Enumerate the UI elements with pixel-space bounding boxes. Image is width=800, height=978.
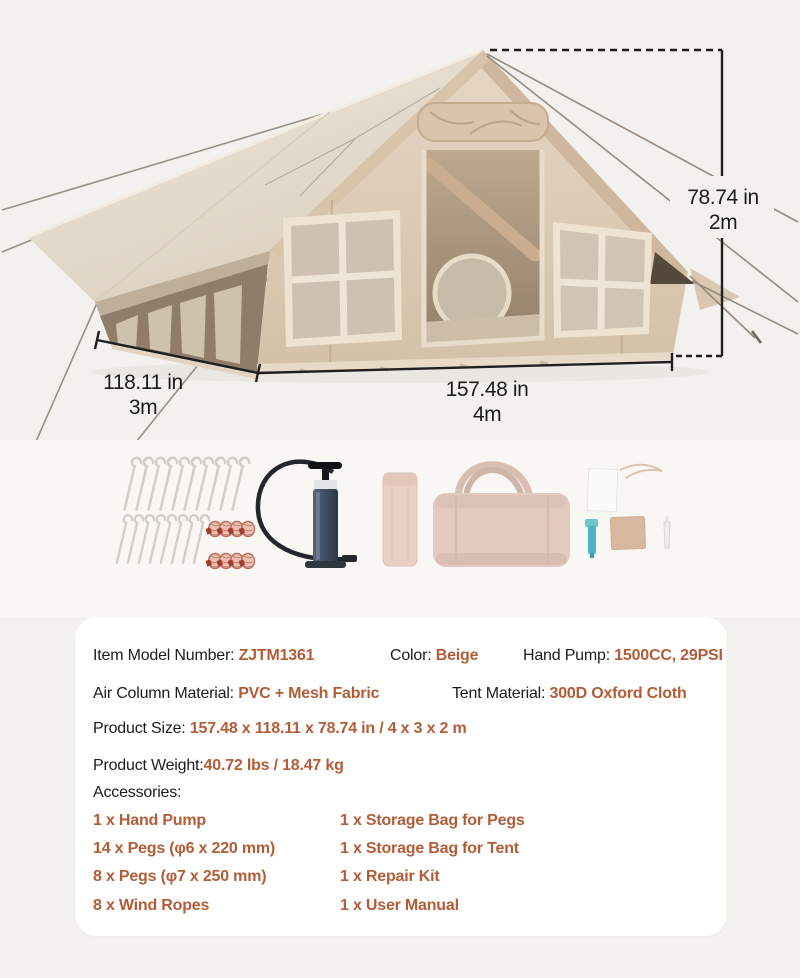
hand-pump-field: Hand Pump: 1500CC, 29PSI bbox=[523, 645, 723, 667]
accessory-pegs-8: 8 x Pegs (φ7 x 250 mm) bbox=[93, 866, 266, 888]
pump-handle bbox=[308, 462, 342, 469]
depth-in-label: 118.11 in bbox=[103, 371, 183, 394]
tent-door bbox=[418, 103, 548, 345]
item-model-label: Item Model Number: bbox=[93, 647, 239, 664]
accessory-hand-pump: 1 x Hand Pump bbox=[93, 810, 206, 832]
width-m-label: 4m bbox=[473, 403, 501, 426]
accessory-row-2: 14 x Pegs (φ6 x 220 mm) 1 x Storage Bag … bbox=[93, 838, 715, 860]
spec-row-size: Product Size: 157.48 x 118.11 x 78.74 in… bbox=[93, 718, 715, 740]
tent-photo: 78.74 in 2m 118.11 in 3m 157.48 in 4m bbox=[0, 0, 800, 440]
color-field: Color: Beige bbox=[390, 645, 478, 667]
air-column-field: Air Column Material: PVC + Mesh Fabric bbox=[93, 683, 379, 705]
product-weight-value: 40.72 lbs / 18.47 kg bbox=[204, 757, 344, 774]
product-size-label: Product Size: bbox=[93, 720, 190, 737]
product-size-value: 157.48 x 118.11 x 78.74 in / 4 x 3 x 2 m bbox=[190, 720, 467, 737]
accessory-row-4: 8 x Wind Ropes 1 x User Manual bbox=[93, 895, 715, 917]
product-page: 78.74 in 2m 118.11 in 3m 157.48 in 4m bbox=[0, 0, 800, 978]
color-value: Beige bbox=[436, 647, 479, 664]
spec-row-materials: Air Column Material: PVC + Mesh Fabric T… bbox=[93, 683, 715, 705]
peg-storage-bag bbox=[383, 473, 417, 566]
spec-row-weight: Product Weight:40.72 lbs / 18.47 kg bbox=[93, 755, 715, 777]
accessory-wind-ropes: 8 x Wind Ropes bbox=[93, 895, 209, 917]
front-window-right bbox=[553, 222, 652, 338]
accessories-photo bbox=[0, 440, 800, 617]
spec-row-model-color-pump: Item Model Number: ZJTM1361 Color: Beige… bbox=[93, 645, 715, 667]
accessory-row-1: 1 x Hand Pump 1 x Storage Bag for Pegs bbox=[93, 810, 715, 832]
item-model-field: Item Model Number: ZJTM1361 bbox=[93, 645, 314, 667]
product-weight-label: Product Weight: bbox=[93, 757, 204, 774]
spec-panel: Item Model Number: ZJTM1361 Color: Beige… bbox=[75, 617, 727, 936]
accessories-heading: Accessories: bbox=[93, 784, 181, 801]
accessory-row-3: 8 x Pegs (φ7 x 250 mm) 1 x Repair Kit bbox=[93, 866, 715, 888]
depth-m-label: 3m bbox=[129, 396, 157, 419]
air-column-label: Air Column Material: bbox=[93, 685, 238, 702]
width-in-label: 157.48 in bbox=[446, 378, 529, 401]
item-model-value: ZJTM1361 bbox=[239, 647, 315, 664]
accessory-pegs-14: 14 x Pegs (φ6 x 220 mm) bbox=[93, 838, 275, 860]
color-label: Color: bbox=[390, 647, 436, 664]
air-column-value: PVC + Mesh Fabric bbox=[238, 685, 379, 702]
spec-row-accessories-heading: Accessories: bbox=[93, 782, 715, 804]
tent-material-label: Tent Material: bbox=[452, 685, 550, 702]
hand-pump-value: 1500CC, 29PSI bbox=[614, 647, 723, 664]
accessory-repair-kit: 1 x Repair Kit bbox=[340, 866, 439, 888]
accessory-storage-bag-pegs: 1 x Storage Bag for Pegs bbox=[340, 810, 525, 832]
accessory-storage-bag-tent: 1 x Storage Bag for Tent bbox=[340, 838, 519, 860]
height-m-label: 2m bbox=[709, 211, 737, 234]
hand-pump-label: Hand Pump: bbox=[523, 647, 614, 664]
tent-material-value: 300D Oxford Cloth bbox=[550, 685, 687, 702]
user-manual bbox=[587, 469, 617, 512]
front-window-left bbox=[283, 210, 402, 347]
height-in-label: 78.74 in bbox=[687, 186, 759, 209]
accessory-user-manual: 1 x User Manual bbox=[340, 895, 459, 917]
tent-material-field: Tent Material: 300D Oxford Cloth bbox=[452, 683, 687, 705]
